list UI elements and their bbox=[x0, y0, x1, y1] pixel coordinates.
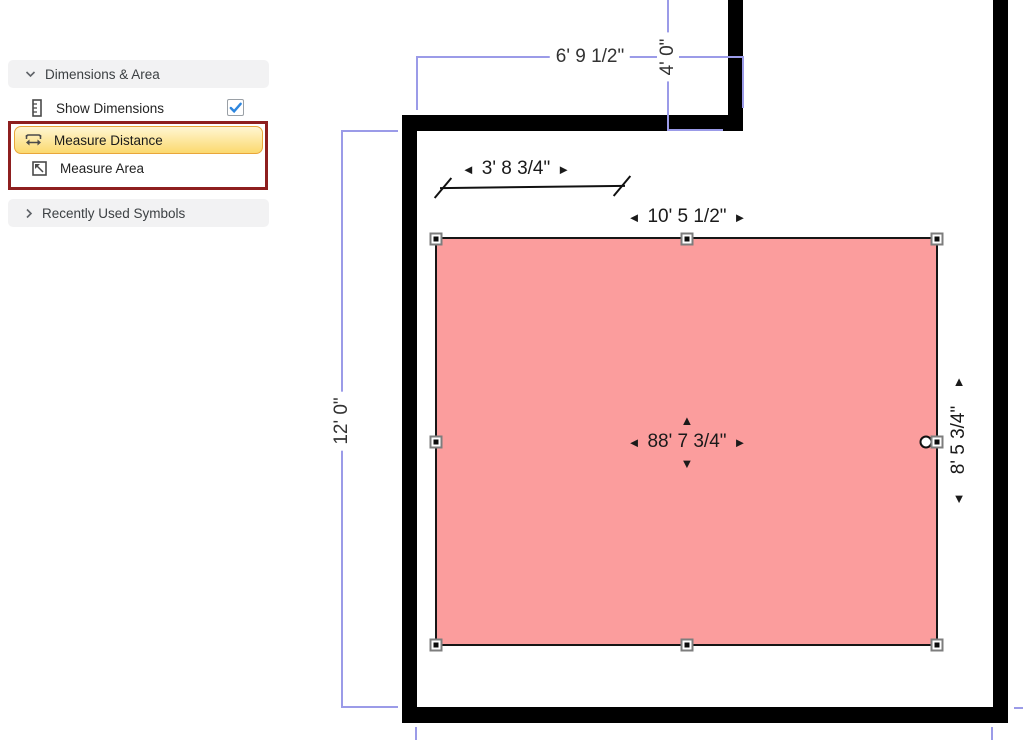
chevron-down-icon bbox=[25, 70, 36, 78]
dimension-extension-left-top bbox=[341, 130, 398, 132]
selection-handle-bottom-left[interactable] bbox=[430, 639, 443, 652]
dimension-extension-top-left bbox=[416, 56, 418, 110]
measure-distance-label: ◄ 3' 8 3/4" ► bbox=[462, 158, 570, 180]
right-arrow-icon: ► bbox=[734, 436, 747, 449]
selection-handle-top-mid[interactable] bbox=[681, 233, 694, 246]
wall-bottom[interactable] bbox=[402, 707, 1008, 723]
section-dimensions-area[interactable]: Dimensions & Area bbox=[8, 60, 269, 88]
dimension-label-top-width: 6' 9 1/2" bbox=[550, 46, 630, 68]
area-width-label: ◄ 10' 5 1/2" ► bbox=[628, 206, 747, 228]
wall-notch-vertical[interactable] bbox=[728, 0, 743, 116]
left-arrow-icon: ◄ bbox=[462, 163, 475, 176]
down-arrow-icon: ▼ bbox=[953, 492, 966, 505]
measure-area-label: Measure Area bbox=[60, 161, 144, 176]
left-arrow-icon: ◄ bbox=[628, 436, 641, 449]
measure-distance-line[interactable] bbox=[440, 185, 625, 189]
dimension-stub-right-edge bbox=[1014, 707, 1023, 709]
dimension-stub-bottom-left bbox=[415, 727, 417, 740]
measure-distance-label: Measure Distance bbox=[54, 133, 163, 148]
left-arrow-icon: ◄ bbox=[628, 211, 641, 224]
section-recently-used-symbols[interactable]: Recently Used Symbols bbox=[8, 199, 269, 227]
measure-distance-button[interactable]: Measure Distance bbox=[14, 126, 263, 154]
show-dimensions-row[interactable]: Show Dimensions bbox=[32, 99, 164, 117]
measure-distance-icon bbox=[25, 134, 42, 146]
check-icon bbox=[228, 100, 243, 116]
wall-right[interactable] bbox=[993, 0, 1008, 723]
up-arrow-icon: ▲ bbox=[953, 375, 966, 388]
wall-left[interactable] bbox=[402, 131, 417, 723]
show-dimensions-label: Show Dimensions bbox=[56, 101, 164, 116]
section-recently-used-symbols-label: Recently Used Symbols bbox=[42, 206, 185, 221]
dimension-extension-left-bottom bbox=[341, 706, 398, 708]
dimension-stub-bottom-right bbox=[991, 727, 993, 740]
selection-handle-bottom-mid[interactable] bbox=[681, 639, 694, 652]
selection-handle-top-left[interactable] bbox=[430, 233, 443, 246]
selection-handle-mid-left[interactable] bbox=[430, 436, 443, 449]
dimension-extension-top-right bbox=[742, 56, 744, 108]
area-height-label: ▲ 8' 5 3/4" ▼ bbox=[947, 375, 971, 505]
right-arrow-icon: ► bbox=[557, 163, 570, 176]
dimension-label-notch-height: 4' 0" bbox=[657, 33, 679, 82]
floorplan-app: Dimensions & Area Show Dimensions Measur… bbox=[0, 0, 1023, 740]
area-center-label: ▲ ◄ 88' 7 3/4" ► ▼ bbox=[628, 414, 747, 470]
section-dimensions-area-label: Dimensions & Area bbox=[45, 67, 160, 82]
ruler-icon bbox=[32, 99, 43, 117]
dimension-extension-notch bbox=[667, 129, 723, 131]
selection-handle-top-right[interactable] bbox=[931, 233, 944, 246]
dimension-label-room-height: 12' 0" bbox=[331, 391, 353, 450]
chevron-right-icon bbox=[25, 208, 33, 219]
measure-area-icon bbox=[32, 161, 47, 176]
up-arrow-icon: ▲ bbox=[681, 414, 694, 427]
right-arrow-icon: ► bbox=[734, 211, 747, 224]
show-dimensions-checkbox[interactable] bbox=[227, 99, 244, 116]
measure-area-row[interactable]: Measure Area bbox=[32, 161, 144, 176]
selection-handle-bottom-right[interactable] bbox=[931, 639, 944, 652]
selection-handle-mid-right[interactable] bbox=[931, 436, 944, 449]
down-arrow-icon: ▼ bbox=[681, 457, 694, 470]
